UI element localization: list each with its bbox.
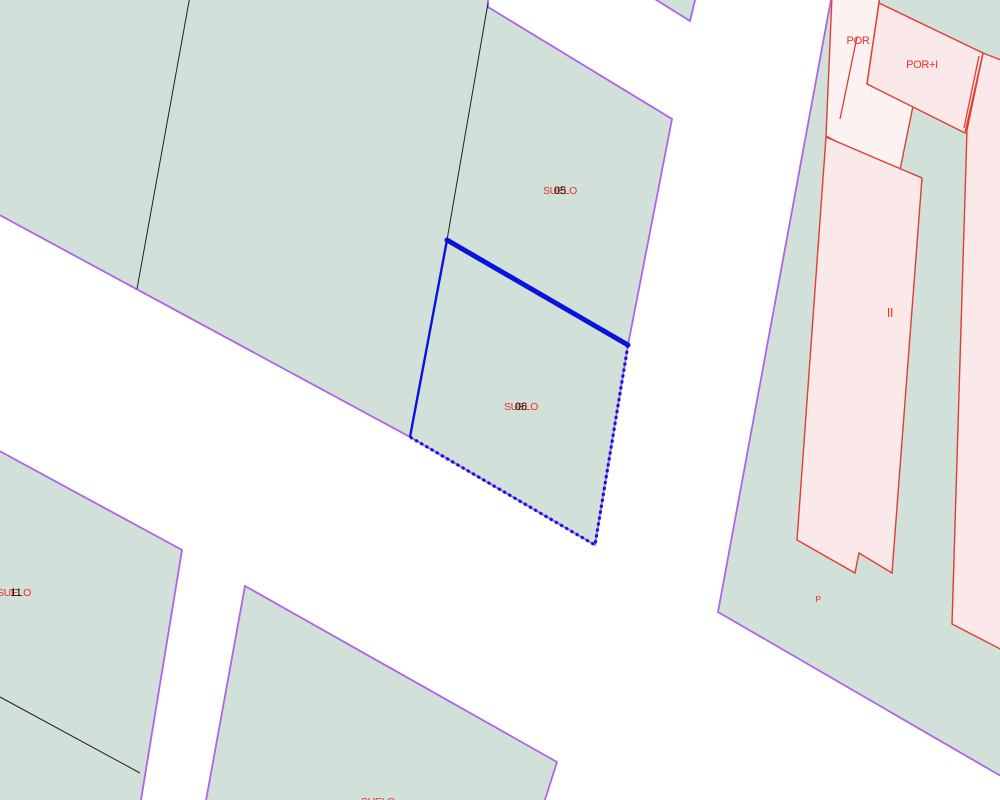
building-por-plus-i-label: POR+I [906,59,938,71]
building-por-label: POR [847,35,870,47]
label-parcel-05: SUELO 05 [543,185,577,197]
cadastral-map-canvas[interactable]: SUELO 05 SUELO 06 SUELO 11 SUELO POR POR… [0,0,1000,800]
building-ii-label: II [887,306,893,320]
map-viewport: SUELO 05 SUELO 06 SUELO 11 SUELO POR POR… [0,0,1000,800]
label-parcel-06: SUELO 06 [504,401,538,413]
patio-label: P [815,594,821,604]
parcel-05-number-label: 05 [554,185,566,197]
parcel-06-number-label: 06 [515,401,527,413]
label-parcel-left: SUELO 11 [0,587,31,599]
parcel-bottom-suelo-label: SUELO [361,796,395,800]
label-parcel-bottom: SUELO [361,796,395,800]
parcel-left-number-label: 11 [10,587,21,599]
